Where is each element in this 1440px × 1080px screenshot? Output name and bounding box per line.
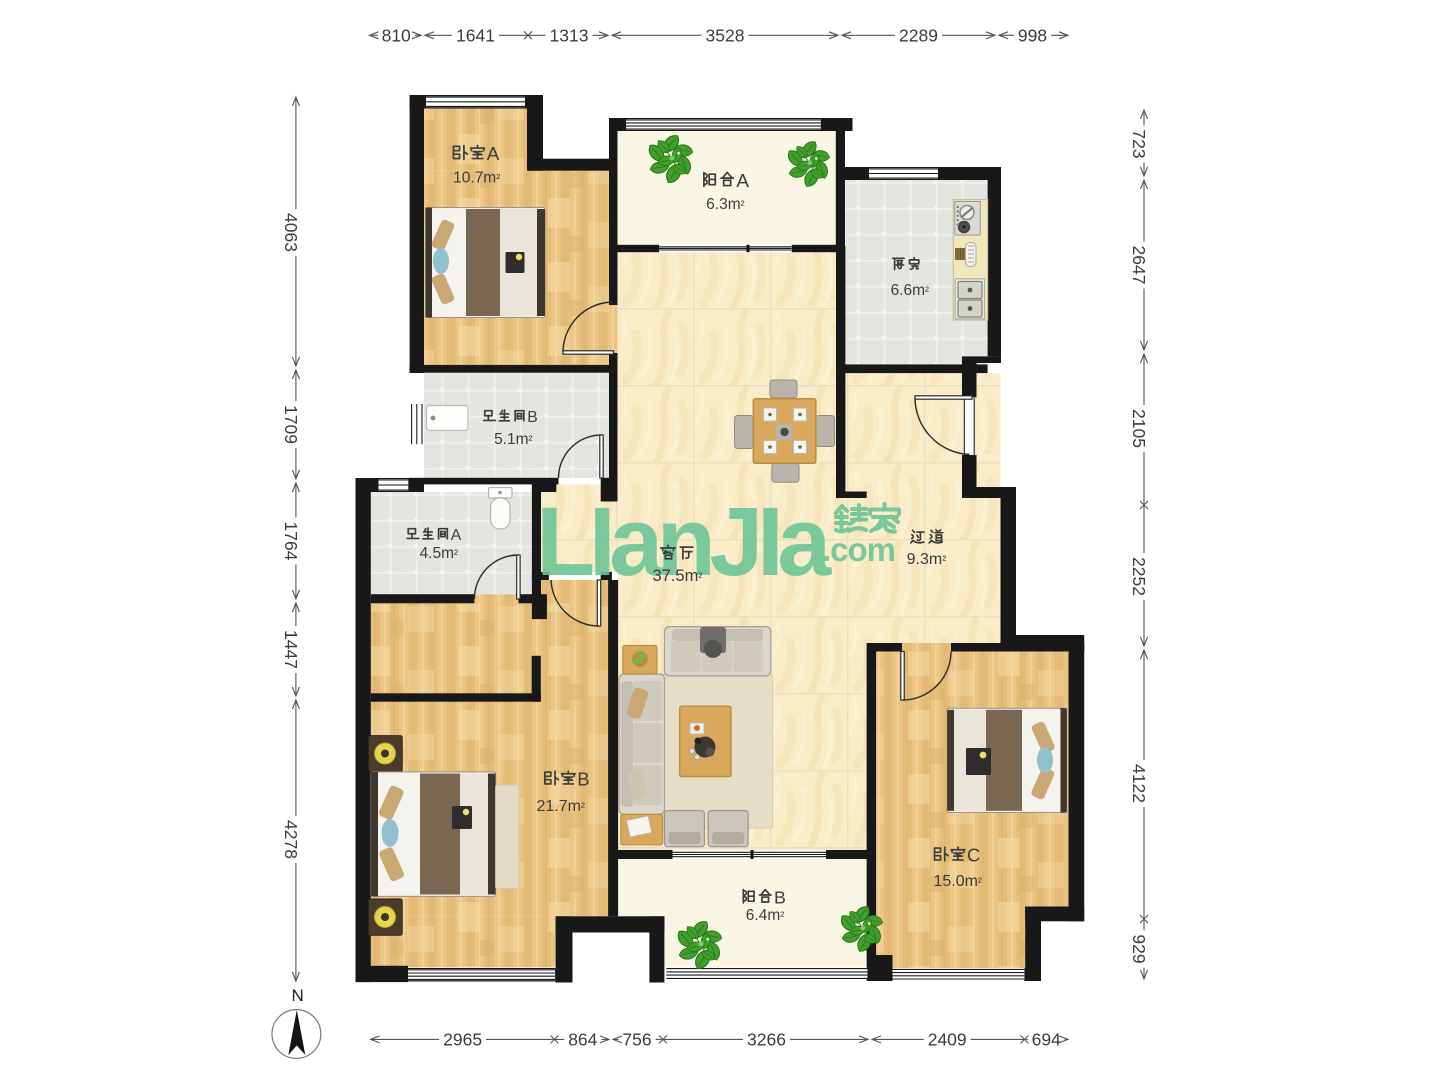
svg-text:A: A [487,144,500,165]
svg-text:4122: 4122 [1129,764,1149,803]
svg-text:2647: 2647 [1129,246,1149,285]
svg-text:1764: 1764 [281,522,301,561]
svg-text:694: 694 [1032,1030,1061,1050]
svg-text:2252: 2252 [1129,557,1149,596]
svg-text:4.5m²: 4.5m² [420,545,458,562]
svg-text:4063: 4063 [281,213,301,252]
svg-text:1313: 1313 [550,26,589,46]
svg-text:B: B [774,887,786,907]
svg-text:2965: 2965 [443,1030,482,1050]
svg-text:756: 756 [622,1030,651,1050]
svg-text:723: 723 [1129,129,1149,158]
svg-text:6.6m²: 6.6m² [891,282,929,299]
svg-text:2105: 2105 [1129,409,1149,448]
svg-text:.com: .com [822,531,895,568]
svg-text:6.4m²: 6.4m² [746,907,784,924]
svg-text:1447: 1447 [281,630,301,669]
svg-text:3528: 3528 [706,26,745,46]
svg-text:4278: 4278 [281,820,301,859]
svg-text:2409: 2409 [928,1030,967,1050]
svg-text:B: B [527,409,537,426]
svg-text:N: N [292,986,304,1005]
svg-text:10.7m²: 10.7m² [453,169,500,186]
svg-text:C: C [967,844,980,865]
svg-text:B: B [577,768,589,789]
svg-text:864: 864 [568,1030,597,1050]
svg-text:37.5m²: 37.5m² [652,567,702,585]
svg-text:A: A [736,171,749,192]
svg-text:15.0m²: 15.0m² [933,873,981,890]
svg-text:6.3m²: 6.3m² [706,196,744,213]
svg-text:21.7m²: 21.7m² [536,798,584,815]
svg-text:810: 810 [382,26,411,46]
svg-text:2289: 2289 [899,26,938,46]
svg-text:929: 929 [1129,934,1149,963]
svg-text:5.1m²: 5.1m² [494,431,532,448]
svg-text:A: A [451,527,462,544]
svg-text:3266: 3266 [747,1030,786,1050]
svg-text:1641: 1641 [456,26,495,46]
svg-text:1709: 1709 [281,405,301,444]
svg-text:9.3m²: 9.3m² [907,551,947,568]
svg-text:998: 998 [1018,26,1047,46]
